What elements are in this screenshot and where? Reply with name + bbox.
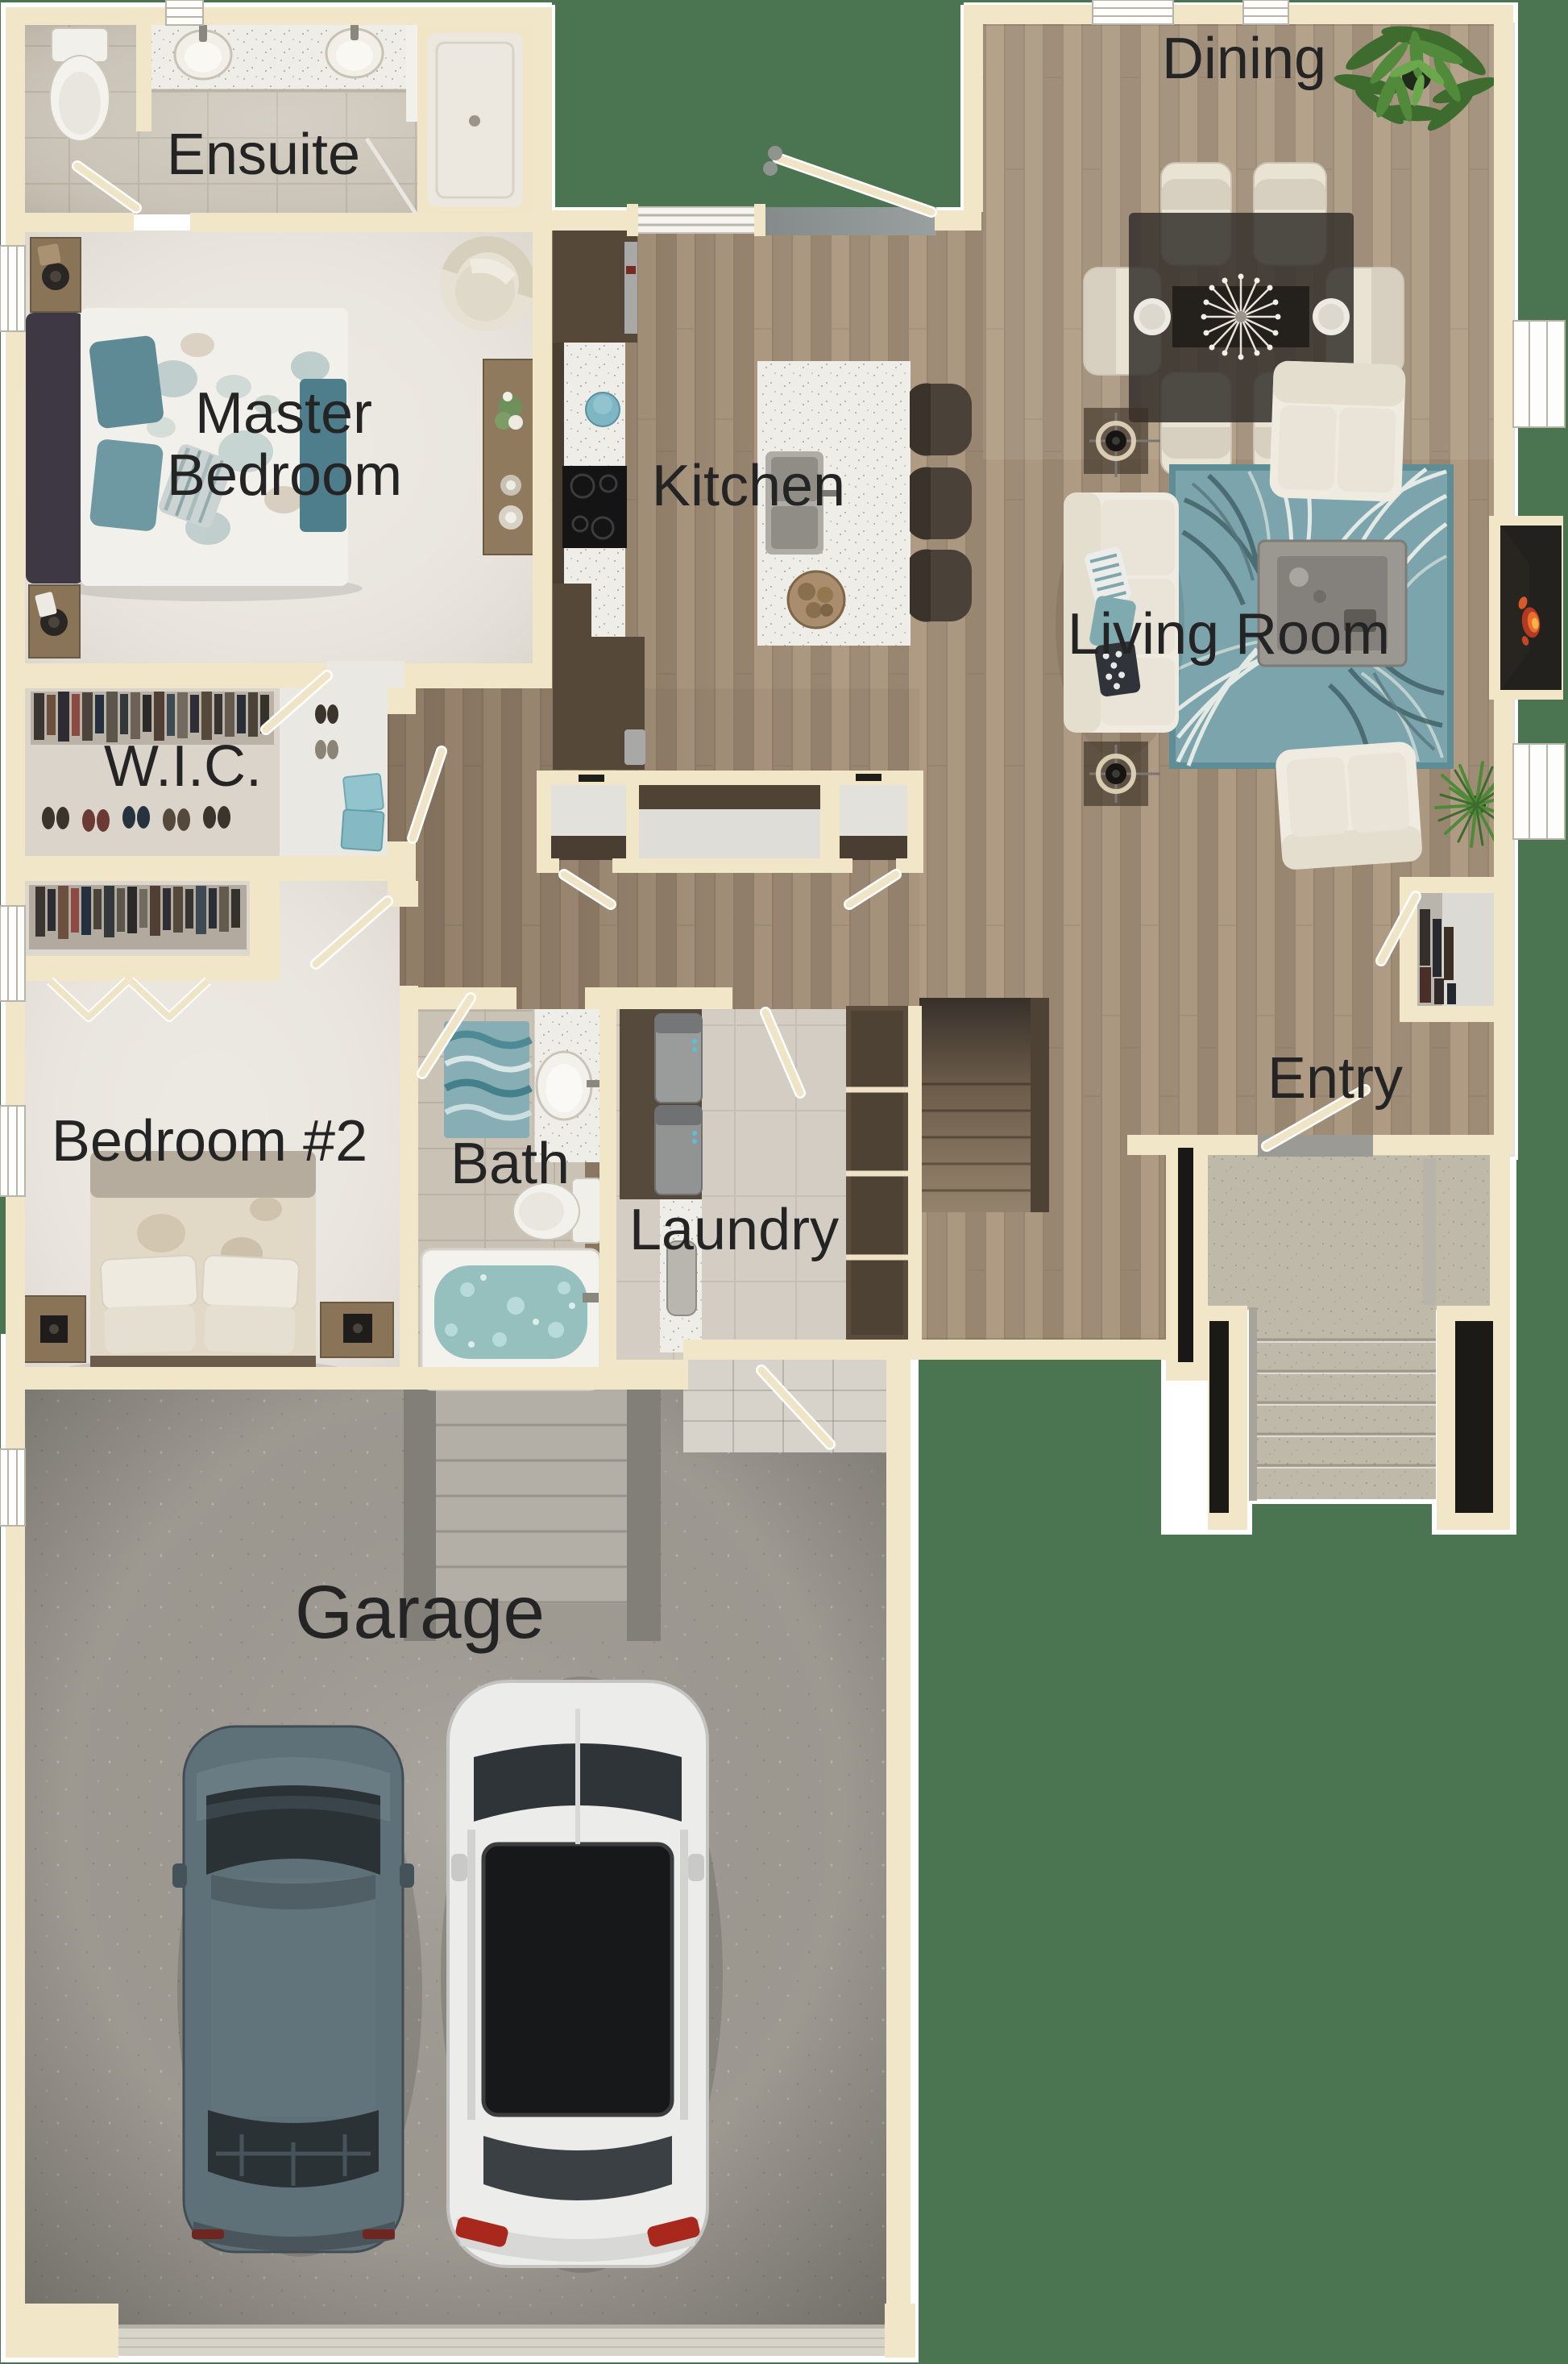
svg-text:Ensuite: Ensuite xyxy=(167,123,360,187)
svg-text:Bedroom: Bedroom xyxy=(167,443,402,508)
svg-text:Kitchen: Kitchen xyxy=(652,454,845,518)
svg-text:Master: Master xyxy=(195,381,372,446)
svg-text:Laundry: Laundry xyxy=(629,1198,839,1262)
svg-text:Garage: Garage xyxy=(295,1570,545,1654)
svg-text:Entry: Entry xyxy=(1267,1046,1403,1111)
svg-text:Bath: Bath xyxy=(450,1132,570,1196)
svg-text:W.I.C.: W.I.C. xyxy=(104,734,262,799)
svg-text:Dining: Dining xyxy=(1162,27,1326,91)
svg-text:Living Room: Living Room xyxy=(1068,602,1390,667)
svg-text:Bedroom #2: Bedroom #2 xyxy=(52,1109,367,1174)
